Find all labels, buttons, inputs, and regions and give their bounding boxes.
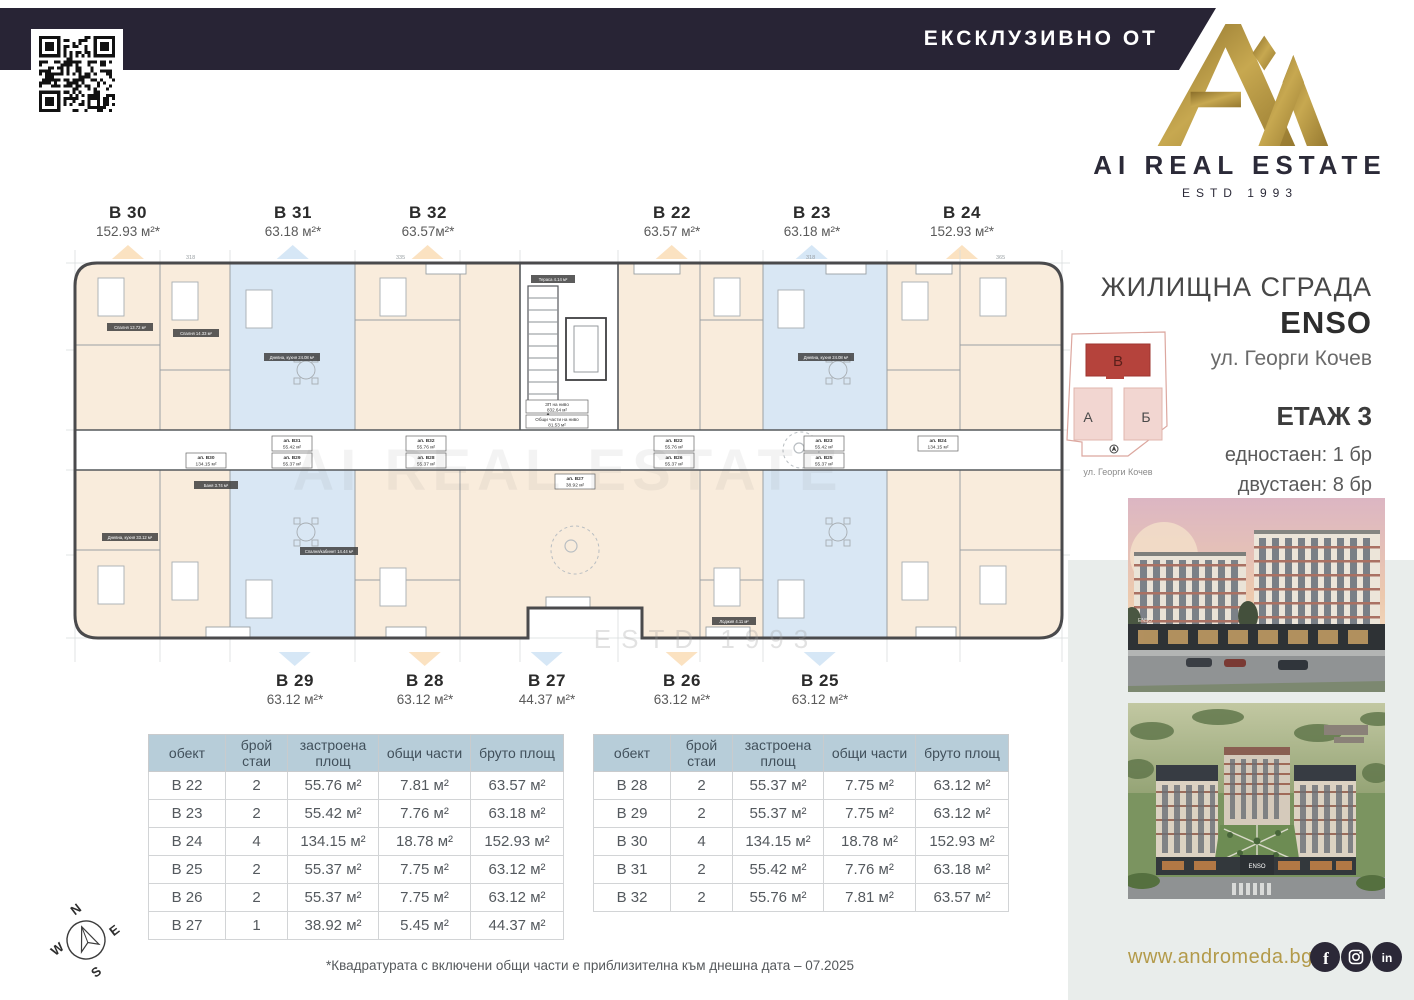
linkedin-icon[interactable]: in xyxy=(1372,942,1402,972)
cell: 55.37 м² xyxy=(733,800,824,828)
project-info: ЖИЛИЩНА СГРАДА ENSO ул. Георги Кочев ЕТА… xyxy=(1000,272,1372,530)
svg-text:Дневна, кухня 24.08 м²: Дневна, кухня 24.08 м² xyxy=(270,355,315,360)
cell: 7.75 м² xyxy=(824,772,916,800)
cell: 2 xyxy=(226,772,288,800)
apartment-area: 63.12 м²* xyxy=(654,692,711,707)
dimension-text: 318 xyxy=(806,255,815,261)
cell: 55.37 м² xyxy=(733,772,824,800)
svg-text:81.53 м²: 81.53 м² xyxy=(548,423,566,428)
cell: 55.37 м² xyxy=(288,856,379,884)
apartment-id: В 30 xyxy=(96,203,160,223)
apartment-area: 63.18 м²* xyxy=(265,224,322,239)
qr-code xyxy=(31,29,123,119)
svg-text:134.15 м²: 134.15 м² xyxy=(928,445,949,451)
apartment-label-b28: В 28 63.12 м²* xyxy=(397,652,454,707)
table-row: В 22255.76 м²7.81 м²63.57 м² xyxy=(149,772,564,800)
cell: 55.42 м² xyxy=(733,856,824,884)
cell: 134.15 м² xyxy=(288,828,379,856)
cell: 4 xyxy=(226,828,288,856)
area-table-right: обект брой стаи застроена площ общи част… xyxy=(593,734,1009,912)
svg-text:ап. В30: ап. В30 xyxy=(197,455,214,461)
watermark-text: AI REAL ESTATE xyxy=(292,438,843,503)
cell: 7.76 м² xyxy=(824,856,916,884)
apartment-area: 63.57 м²* xyxy=(644,224,701,239)
cell: В 25 xyxy=(149,856,226,884)
cell: В 23 xyxy=(149,800,226,828)
svg-text:Общи части на ниво: Общи части на ниво xyxy=(535,417,579,422)
table-row: В 26255.37 м²7.75 м²63.12 м² xyxy=(149,884,564,912)
cell: 2 xyxy=(226,800,288,828)
col-header: брой стаи xyxy=(226,735,288,772)
cell: 18.78 м² xyxy=(379,828,471,856)
col-header: застроена площ xyxy=(733,735,824,772)
cell: 2 xyxy=(226,884,288,912)
triangle-icon xyxy=(804,652,836,666)
building-right xyxy=(1254,530,1380,630)
svg-text:ап. В24: ап. В24 xyxy=(929,438,946,444)
table-row: В 27138.92 м²5.45 м²44.37 м² xyxy=(149,912,564,940)
svg-text:Спалня 14.33 м²: Спалня 14.33 м² xyxy=(180,331,212,336)
cell: 63.18 м² xyxy=(916,856,1009,884)
cell: 7.81 м² xyxy=(824,884,916,912)
apartment-label-b26: В 26 63.12 м²* xyxy=(654,652,711,707)
svg-text:f: f xyxy=(1323,949,1329,968)
cell: 4 xyxy=(671,828,733,856)
svg-text:Спалня/кабинет 14.44 м²: Спалня/кабинет 14.44 м² xyxy=(305,549,354,554)
col-header: застроена площ xyxy=(288,735,379,772)
cell: 55.37 м² xyxy=(288,884,379,912)
cell: 7.75 м² xyxy=(824,800,916,828)
triangle-icon xyxy=(409,652,441,666)
apartment-area: 44.37 м²* xyxy=(519,692,576,707)
col-header: бруто площ xyxy=(471,735,564,772)
cell: 7.75 м² xyxy=(379,856,471,884)
table-row: В 304134.15 м²18.78 м²152.93 м² xyxy=(594,828,1009,856)
svg-text:Баня 3.74 м²: Баня 3.74 м² xyxy=(204,483,229,488)
cell: 44.37 м² xyxy=(471,912,564,940)
table-row: В 244134.15 м²18.78 м²152.93 м² xyxy=(149,828,564,856)
floor-plan: 318 335 453 318 365 222 xyxy=(66,250,1070,670)
cell: 55.42 м² xyxy=(288,800,379,828)
triangle-icon xyxy=(279,652,311,666)
cell: 55.76 м² xyxy=(288,772,379,800)
building-name: ENSO xyxy=(1000,305,1372,341)
brand-banner: ЕКСКЛУЗИВНО ОТ xyxy=(0,8,1216,70)
cell: 63.12 м² xyxy=(471,856,564,884)
cell: В 31 xyxy=(594,856,671,884)
apartment-area: 63.57м²* xyxy=(402,224,455,239)
floor-title: ЕТАЖ 3 xyxy=(1000,401,1372,432)
logo-mountain-icon xyxy=(1147,22,1333,148)
cell: 38.92 м² xyxy=(288,912,379,940)
cell: 2 xyxy=(226,856,288,884)
compass-n: N xyxy=(67,900,84,918)
compass-icon: N E S W xyxy=(36,888,136,988)
apartment-label-b29: В 29 63.12 м²* xyxy=(267,652,324,707)
dimension-text: 318 xyxy=(186,255,195,261)
apartment-area: 152.93 м²* xyxy=(930,224,994,239)
apartment-area: 63.12 м²* xyxy=(267,692,324,707)
table-row: В 25255.37 м²7.75 м²63.12 м² xyxy=(149,856,564,884)
facebook-icon[interactable]: f xyxy=(1310,942,1340,972)
table-row: В 23255.42 м²7.76 м²63.18 м² xyxy=(149,800,564,828)
svg-text:Тераса 4.14 м²: Тераса 4.14 м² xyxy=(539,277,568,282)
render-photo-street: ENSO xyxy=(1128,498,1385,692)
table-row: В 28255.37 м²7.75 м²63.12 м² xyxy=(594,772,1009,800)
apartment-id: В 24 xyxy=(930,203,994,223)
apartment-area: 63.12 м²* xyxy=(397,692,454,707)
area-table-left: обект брой стаи застроена площ общи част… xyxy=(148,734,564,940)
apartment-label-b25: В 25 63.12 м²* xyxy=(792,652,849,707)
table-header-row: обект брой стаи застроена площ общи част… xyxy=(149,735,564,772)
instagram-icon[interactable] xyxy=(1341,942,1371,972)
cell: 2 xyxy=(671,884,733,912)
compass-s: S xyxy=(88,963,104,980)
logo-estd: ESTD 1993 xyxy=(1090,186,1390,200)
enso-sign: ENSO xyxy=(1248,864,1265,870)
render-photo-aerial: ENSO xyxy=(1128,703,1385,899)
building-type: ЖИЛИЩНА СГРАДА xyxy=(1000,272,1372,303)
cell: 55.76 м² xyxy=(733,884,824,912)
triangle-icon xyxy=(531,652,563,666)
cell: В 27 xyxy=(149,912,226,940)
apartment-label-b27: В 27 44.37 м²* xyxy=(519,652,576,707)
svg-text:134.15 м²: 134.15 м² xyxy=(196,462,217,468)
apartment-id: В 25 xyxy=(792,671,849,691)
dimension-text: 335 xyxy=(396,255,405,261)
cell: 7.75 м² xyxy=(379,884,471,912)
svg-text:Спалня 13.72 м²: Спалня 13.72 м² xyxy=(114,325,146,330)
cell: 2 xyxy=(671,772,733,800)
triangle-icon xyxy=(666,652,698,666)
apartment-area: 63.18 м²* xyxy=(784,224,841,239)
apartment-id: В 28 xyxy=(397,671,454,691)
cell: 152.93 м² xyxy=(916,828,1009,856)
cell: 152.93 м² xyxy=(471,828,564,856)
table-header-row: обект брой стаи застроена площ общи част… xyxy=(594,735,1009,772)
cell: В 29 xyxy=(594,800,671,828)
compass-e: E xyxy=(106,922,122,939)
cell: В 24 xyxy=(149,828,226,856)
svg-text:Дневна, кухня 33.12 м²: Дневна, кухня 33.12 м² xyxy=(108,535,153,540)
cell: 134.15 м² xyxy=(733,828,824,856)
watermark-estd: ESTD 1993 xyxy=(594,624,818,654)
cell: 7.76 м² xyxy=(379,800,471,828)
building-address: ул. Георги Кочев xyxy=(1000,347,1372,371)
cell: 7.81 м² xyxy=(379,772,471,800)
qr-code-graphic xyxy=(38,36,116,112)
floor-plan-drawing: 318 335 453 318 365 222 xyxy=(66,250,1070,670)
cell: 63.12 м² xyxy=(916,772,1009,800)
cell: 18.78 м² xyxy=(824,828,916,856)
col-header: общи части xyxy=(379,735,471,772)
dimension-text: 365 xyxy=(996,255,1005,261)
cell: В 26 xyxy=(149,884,226,912)
apartment-id: В 31 xyxy=(265,203,322,223)
compass-w: W xyxy=(48,939,67,959)
col-header: бруто площ xyxy=(916,735,1009,772)
website-link[interactable]: www.andromeda.bg xyxy=(1128,942,1313,972)
col-header: общи части xyxy=(824,735,916,772)
flyer-page: ЕКСКЛУЗИВНО ОТ AI REAL ESTATE ESTD 1993 … xyxy=(0,0,1414,1000)
apartment-id: В 27 xyxy=(519,671,576,691)
site-label-a: А xyxy=(1083,409,1093,425)
site-map-caption: ул. Георги Кочев xyxy=(1062,467,1174,477)
apartment-area: 63.12 м²* xyxy=(792,692,849,707)
svg-text:ЗП на ниво: ЗП на ниво xyxy=(545,402,569,407)
site-building-a xyxy=(1074,388,1112,440)
cell: В 30 xyxy=(594,828,671,856)
unit-count-line: двустаен: 8 бр xyxy=(1000,470,1372,500)
apartment-id: В 29 xyxy=(267,671,324,691)
cell: В 32 xyxy=(594,884,671,912)
table-row: В 31255.42 м²7.76 м²63.18 м² xyxy=(594,856,1009,884)
cell: 63.57 м² xyxy=(916,884,1009,912)
elevator xyxy=(566,318,606,380)
apartment-id: В 23 xyxy=(784,203,841,223)
cell: 63.57 м² xyxy=(471,772,564,800)
site-label-b: Б xyxy=(1141,409,1150,425)
svg-text:832.64 м²: 832.64 м² xyxy=(547,408,567,413)
cell: 63.12 м² xyxy=(916,800,1009,828)
col-header: брой стаи xyxy=(671,735,733,772)
cell: 1 xyxy=(226,912,288,940)
enso-sign: ENSO xyxy=(1138,618,1152,624)
site-map-drawing: В А Б xyxy=(1062,330,1174,460)
cell: 2 xyxy=(671,856,733,884)
cell: В 22 xyxy=(149,772,226,800)
apartment-id: В 32 xyxy=(402,203,455,223)
cell: 5.45 м² xyxy=(379,912,471,940)
cell: 63.18 м² xyxy=(471,800,564,828)
svg-text:Дневна, кухня 24.08 м²: Дневна, кухня 24.08 м² xyxy=(804,355,849,360)
cell: 2 xyxy=(671,800,733,828)
site-map: В А Б ул. Георги Кочев xyxy=(1062,330,1174,477)
apartment-area: 152.93 м²* xyxy=(96,224,160,239)
col-header: обект xyxy=(149,735,226,772)
apartment-id: В 26 xyxy=(654,671,711,691)
svg-text:in: in xyxy=(1382,951,1393,965)
unit-count-line: едностаен: 1 бр xyxy=(1000,440,1372,470)
logo-name: AI REAL ESTATE xyxy=(1090,150,1390,181)
apartment-id: В 22 xyxy=(644,203,701,223)
cell: В 28 xyxy=(594,772,671,800)
table-row: В 29255.37 м²7.75 м²63.12 м² xyxy=(594,800,1009,828)
table-row: В 32255.76 м²7.81 м²63.57 м² xyxy=(594,884,1009,912)
footnote: *Квадратурата с включени общи части е пр… xyxy=(160,958,1020,973)
col-header: обект xyxy=(594,735,671,772)
brand-logo: AI REAL ESTATE ESTD 1993 xyxy=(1090,22,1390,200)
site-label-v: В xyxy=(1113,353,1123,370)
cell: 63.12 м² xyxy=(471,884,564,912)
